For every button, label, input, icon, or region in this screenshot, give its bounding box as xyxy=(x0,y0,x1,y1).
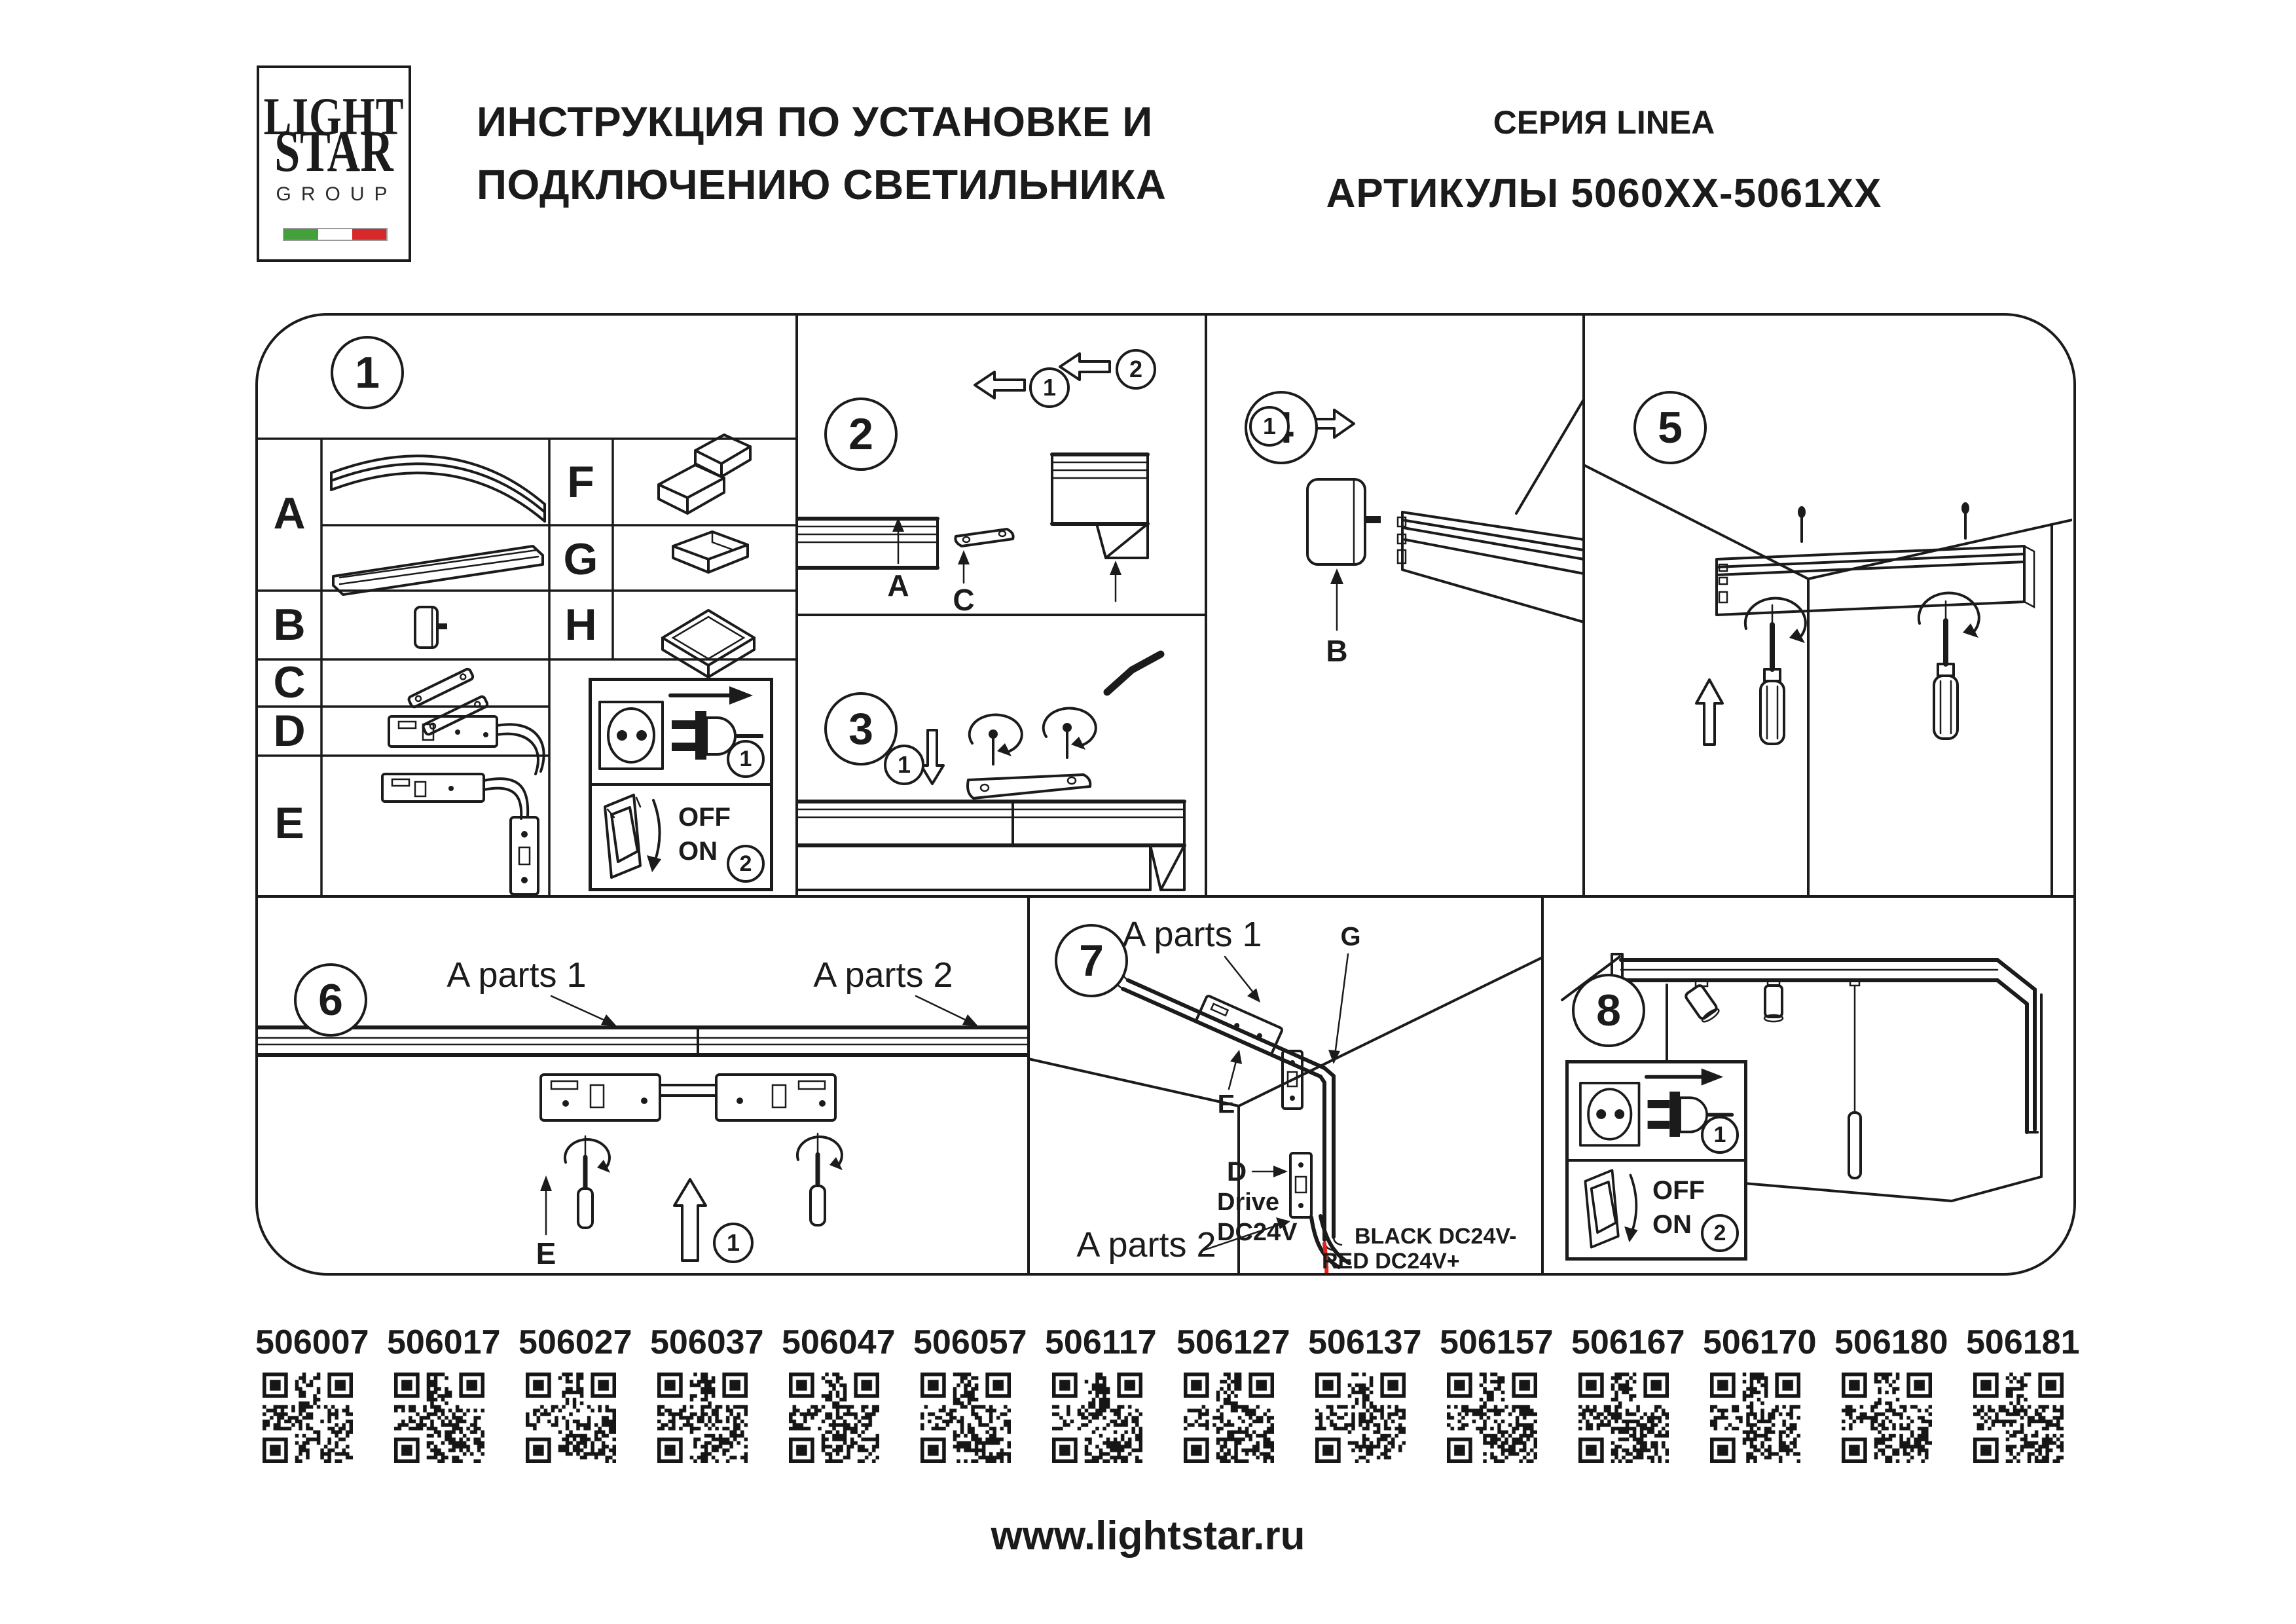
end-cap-drawing xyxy=(415,607,447,648)
qr-item: 506127 xyxy=(1176,1323,1281,1466)
strip-screws-drawing xyxy=(968,654,1161,798)
qr-item: 506047 xyxy=(782,1323,886,1466)
switch-on-step: OFF ON 2 xyxy=(1569,1162,1744,1257)
qr-article-number: 506181 xyxy=(1966,1323,2071,1362)
track-corner-drawing xyxy=(1052,454,1148,558)
pendant-light-icon xyxy=(1849,980,1861,1178)
screwdriver-icon xyxy=(1107,654,1161,692)
insert-arrow-1-icon xyxy=(975,372,1025,398)
end-cap-b-drawing xyxy=(1307,479,1381,564)
series-name: СЕРИЯ LINEA xyxy=(1277,103,1931,141)
row-letter-g: G xyxy=(564,534,598,585)
drive-label-line1: Drive xyxy=(1217,1189,1279,1217)
qr-article-number: 506137 xyxy=(1308,1323,1413,1362)
label-e: E xyxy=(1218,1090,1235,1120)
qr-article-number: 506157 xyxy=(1440,1323,1544,1362)
connector-g-drawing xyxy=(673,532,748,572)
row-letter-a: A xyxy=(273,488,305,539)
qr-item: 506057 xyxy=(913,1323,1018,1466)
label-e: E xyxy=(536,1236,556,1271)
power-legend-box: 1 OFF ON 2 xyxy=(1565,1060,1747,1261)
panel-5-mount-ceiling: 5 xyxy=(1582,316,2072,896)
qr-item: 506180 xyxy=(1834,1323,1939,1466)
push-up-arrow-icon xyxy=(1696,680,1722,745)
qr-article-number: 506037 xyxy=(650,1323,755,1362)
spotlight-down-icon xyxy=(1764,980,1783,1022)
qr-article-number: 506057 xyxy=(913,1323,1018,1362)
panel-6-connect-parts: 6 A parts 1 A parts 2 E 1 xyxy=(258,896,1029,1273)
title-line-2: ПОДКЛЮЧЕНИЮ СВЕТИЛЬНИКА xyxy=(477,153,1256,216)
plug-in-step: 1 xyxy=(592,681,770,786)
track-drawing xyxy=(1717,546,2034,615)
off-label: OFF xyxy=(1652,1173,1705,1208)
series-block: СЕРИЯ LINEA АРТИКУЛЫ 5060XX-5061XX xyxy=(1277,103,1931,217)
track-straight-drawing xyxy=(333,546,543,595)
on-label: ON xyxy=(1652,1208,1705,1242)
drive-label-line2: DC24V xyxy=(1217,1219,1298,1247)
panel-7-corner-wiring: 7 A parts 1 G E D Drive DC24V A parts 2 … xyxy=(1029,896,1542,1273)
qr-code-icon xyxy=(526,1373,616,1463)
qr-item: 506027 xyxy=(519,1323,623,1466)
label-d: D xyxy=(1227,1156,1247,1187)
qr-code-icon xyxy=(1052,1373,1142,1463)
qr-article-number: 506027 xyxy=(519,1323,623,1362)
a-parts-2-label: A parts 2 xyxy=(813,955,953,995)
panel-8-number: 8 xyxy=(1572,974,1645,1047)
switch-on-step: OFF ON 2 xyxy=(592,786,770,888)
connector-f-drawing xyxy=(659,435,750,513)
power-legend-box: 1 OFF ON 2 xyxy=(589,678,773,891)
row-letter-c: C xyxy=(273,657,305,708)
qr-code-icon xyxy=(394,1373,484,1463)
black-wire-label: BLACK DC24V- xyxy=(1355,1224,1516,1249)
step-2-circle: 2 xyxy=(727,845,765,883)
row-letter-d: D xyxy=(273,705,305,756)
qr-code-icon xyxy=(657,1373,748,1463)
push-up-arrow-icon xyxy=(674,1179,706,1261)
qr-code-icon xyxy=(1842,1373,1932,1463)
qr-article-number: 506007 xyxy=(255,1323,360,1362)
logo-word-group: GROUP xyxy=(264,183,409,206)
panel-6-number: 6 xyxy=(294,963,367,1037)
qr-article-number: 506047 xyxy=(782,1323,886,1362)
title-line-1: ИНСТРУКЦИЯ ПО УСТАНОВКЕ И xyxy=(477,90,1256,153)
website-url: www.lightstar.ru xyxy=(0,1513,2296,1559)
qr-item: 506170 xyxy=(1703,1323,1808,1466)
panel-2-join-tracks: 2 1 2 A C xyxy=(797,316,1206,615)
articles-range: АРТИКУЛЫ 5060XX-5061XX xyxy=(1277,170,1931,217)
qr-article-number: 506167 xyxy=(1571,1323,1676,1362)
qr-item: 506157 xyxy=(1440,1323,1544,1466)
row-letter-f: F xyxy=(567,456,594,507)
step-2-circle: 2 xyxy=(1116,349,1156,390)
qr-item: 506117 xyxy=(1045,1323,1150,1466)
track-assembled-drawing xyxy=(797,802,1184,890)
qr-article-number: 506117 xyxy=(1045,1323,1150,1362)
driver-drawing xyxy=(389,716,544,774)
qr-code-icon xyxy=(263,1373,353,1463)
step-1-circle: 1 xyxy=(1249,406,1290,447)
screwdriver-left-icon xyxy=(565,1136,610,1228)
qr-code-icon xyxy=(1447,1373,1537,1463)
panel-1-parts-table: 1 A B C D E F G H 1 xyxy=(258,316,797,896)
logo-word-star: STAR xyxy=(259,128,409,176)
step-1-circle: 1 xyxy=(1701,1116,1739,1154)
screwdriver-right-icon xyxy=(797,1134,843,1225)
screwdriver-right-icon xyxy=(1919,593,1979,739)
label-a: A xyxy=(887,568,909,603)
qr-code-icon xyxy=(1315,1373,1406,1463)
off-label: OFF xyxy=(678,800,731,834)
plug-in-step: 1 xyxy=(1569,1063,1744,1162)
screwdriver-left-icon xyxy=(1745,599,1806,744)
connector-strips-drawing xyxy=(408,668,488,735)
screws xyxy=(1798,502,1969,542)
a-parts-1-label: A parts 1 xyxy=(1122,914,1262,955)
step-2-circle: 2 xyxy=(1701,1214,1739,1252)
on-label: ON xyxy=(678,834,731,868)
qr-article-number: 506017 xyxy=(387,1323,492,1362)
qr-item: 506007 xyxy=(255,1323,360,1466)
track-left-drawing xyxy=(797,519,938,568)
corner-driver-drawing xyxy=(382,774,538,895)
a-parts-1-label: A parts 1 xyxy=(446,955,586,995)
label-g: G xyxy=(1340,923,1360,952)
panel-3-screw-strip: 3 1 xyxy=(797,615,1206,896)
panel-2-number: 2 xyxy=(824,397,898,471)
step-1-circle: 1 xyxy=(884,745,924,785)
instruction-sheet: { "colors":{"ink":"#1b1b1b","red":"#e023… xyxy=(0,0,2296,1624)
qr-item: 506181 xyxy=(1966,1323,2071,1466)
italian-flag-icon xyxy=(283,228,388,241)
a-parts-2-label: A parts 2 xyxy=(1076,1225,1216,1265)
ceiling-track-drawing xyxy=(1115,965,1324,1077)
panel-6-drawing xyxy=(258,896,1029,1273)
qr-code-icon xyxy=(920,1373,1011,1463)
step-1-circle: 1 xyxy=(713,1223,754,1263)
red-wire-label: RED DC24V+ xyxy=(1322,1249,1460,1273)
qr-code-icon xyxy=(1973,1373,2064,1463)
page-title: ИНСТРУКЦИЯ ПО УСТАНОВКЕ И ПОДКЛЮЧЕНИЮ СВ… xyxy=(477,90,1256,216)
qr-code-icon xyxy=(1578,1373,1669,1463)
qr-code-icon xyxy=(1710,1373,1800,1463)
row-letter-b: B xyxy=(273,599,305,650)
joined-track-drawing xyxy=(258,1027,1029,1055)
driver-plate-drawing xyxy=(1290,1153,1311,1217)
connector-plates-drawing xyxy=(541,1075,835,1120)
qr-article-number: 506170 xyxy=(1703,1323,1808,1362)
track-profile-drawing xyxy=(1398,512,1584,622)
qr-item: 506167 xyxy=(1571,1323,1676,1466)
corner-track-drawing xyxy=(663,610,754,677)
qr-item: 506037 xyxy=(650,1323,755,1466)
panel-1-number: 1 xyxy=(331,336,404,409)
step-1-circle: 1 xyxy=(727,740,765,778)
qr-code-icon xyxy=(789,1373,879,1463)
track-curved-drawing xyxy=(331,456,545,521)
parts-label-arrows xyxy=(551,996,978,1026)
step-1-circle: 1 xyxy=(1029,367,1070,408)
place-arrow-icon xyxy=(921,730,943,784)
panel-4-end-cap: 4 1 B xyxy=(1206,316,1584,896)
qr-item: 506017 xyxy=(387,1323,492,1466)
qr-row: 5060075060175060275060375060475060575061… xyxy=(255,1323,2071,1466)
qr-item: 506137 xyxy=(1308,1323,1413,1466)
ceiling-corner-lines xyxy=(1582,464,2072,896)
diagram-block: 1 A B C D E F G H 1 xyxy=(255,313,2076,1276)
qr-article-number: 506180 xyxy=(1834,1323,1939,1362)
qr-code-icon xyxy=(1184,1373,1274,1463)
insert-arrow-2-icon xyxy=(1060,354,1110,380)
spotlight-angled-icon xyxy=(1685,984,1721,1024)
panel-7-number: 7 xyxy=(1055,924,1128,997)
row-letter-h: H xyxy=(564,599,596,650)
wall-edge-line xyxy=(1516,399,1584,513)
lightstar-logo: LIGHT STAR GROUP xyxy=(257,65,411,262)
qr-article-number: 506127 xyxy=(1176,1323,1281,1362)
row-letter-e: E xyxy=(274,798,304,849)
connector-strip-drawing xyxy=(955,529,1013,546)
label-b: B xyxy=(1326,633,1347,669)
panel-8-finished-room: 8 1 xyxy=(1542,896,2073,1273)
panel-5-number: 5 xyxy=(1633,391,1707,464)
label-c: C xyxy=(953,582,974,615)
